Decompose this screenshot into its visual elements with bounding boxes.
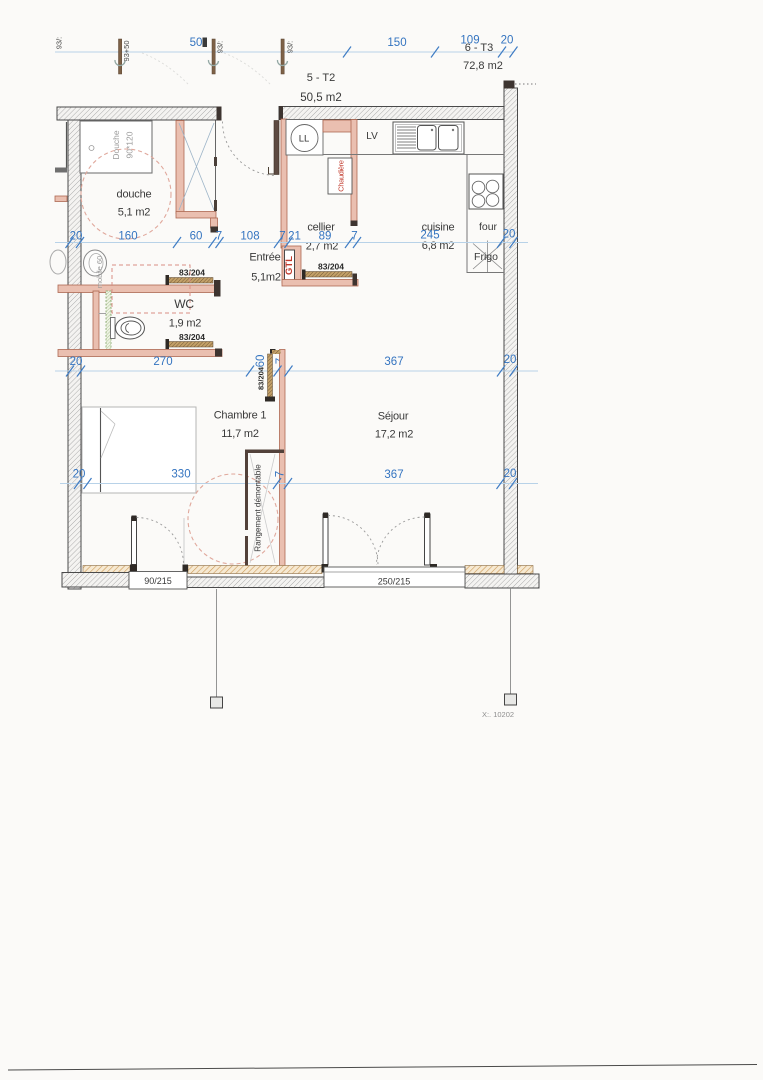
svg-text:60: 60: [190, 231, 203, 243]
svg-text:X:. 10202: X:. 10202: [482, 710, 514, 719]
svg-text:5,1m2: 5,1m2: [251, 272, 281, 284]
svg-text:20: 20: [501, 35, 514, 47]
svg-text:20: 20: [504, 354, 517, 366]
svg-text:four: four: [479, 221, 498, 233]
svg-text:160: 160: [118, 231, 137, 243]
svg-text:83/204: 83/204: [318, 262, 344, 272]
svg-text:Rangement démontable: Rangement démontable: [254, 464, 263, 552]
svg-text:60: 60: [255, 355, 267, 368]
svg-text:20: 20: [504, 468, 517, 480]
svg-text:17,2 m2: 17,2 m2: [375, 429, 413, 441]
svg-text:367: 367: [384, 469, 403, 481]
svg-text:Séjour: Séjour: [378, 411, 409, 423]
svg-text:Douche: Douche: [111, 130, 121, 160]
svg-text:7: 7: [275, 471, 287, 477]
svg-text:1,9 m2: 1,9 m2: [169, 318, 202, 330]
svg-text:6 - T3: 6 - T3: [465, 42, 494, 54]
svg-text:330: 330: [171, 469, 190, 481]
svg-text:20: 20: [73, 469, 86, 481]
svg-text:93/:: 93/:: [286, 41, 295, 54]
svg-text:20: 20: [70, 356, 83, 368]
svg-text:108: 108: [240, 231, 259, 243]
svg-text:93/:: 93/:: [55, 37, 64, 50]
svg-text:5 - T2: 5 - T2: [307, 72, 336, 84]
svg-text:83/204: 83/204: [179, 268, 205, 278]
svg-text:7: 7: [279, 231, 285, 243]
svg-text:LL: LL: [299, 134, 310, 145]
svg-text:89: 89: [319, 231, 332, 243]
svg-text:Chambre 1: Chambre 1: [214, 410, 267, 422]
svg-text:83/204: 83/204: [256, 366, 265, 390]
svg-text:GTL: GTL: [284, 256, 295, 275]
svg-text:270: 270: [153, 356, 172, 368]
svg-text:11,7 m2: 11,7 m2: [221, 428, 259, 440]
svg-text:72,8 m2: 72,8 m2: [463, 60, 503, 72]
svg-text:367: 367: [384, 356, 403, 368]
svg-text:150: 150: [387, 37, 406, 49]
svg-text:douche: douche: [117, 189, 152, 201]
svg-text:50,5 m2: 50,5 m2: [300, 92, 342, 104]
svg-text:93/:: 93/:: [216, 41, 225, 54]
svg-text:90*120: 90*120: [125, 131, 135, 158]
svg-text:WC: WC: [174, 297, 194, 311]
svg-text:5,1 m2: 5,1 m2: [118, 207, 151, 219]
svg-text:Chaudière: Chaudière: [336, 160, 345, 192]
svg-text:Entrée: Entrée: [249, 252, 280, 264]
svg-text:6,8 m2: 6,8 m2: [422, 240, 455, 252]
svg-text:250/215: 250/215: [378, 577, 411, 587]
svg-text:83/204: 83/204: [179, 332, 205, 342]
svg-text:90/215: 90/215: [144, 576, 172, 586]
svg-text:7: 7: [351, 231, 357, 243]
svg-text:Frigo: Frigo: [474, 251, 498, 263]
svg-text:20: 20: [503, 229, 516, 241]
svg-text:50: 50: [190, 37, 203, 49]
svg-text:93+50: 93+50: [122, 40, 131, 61]
svg-text:LV: LV: [366, 131, 378, 142]
svg-text:mobile 60: mobile 60: [95, 256, 104, 289]
